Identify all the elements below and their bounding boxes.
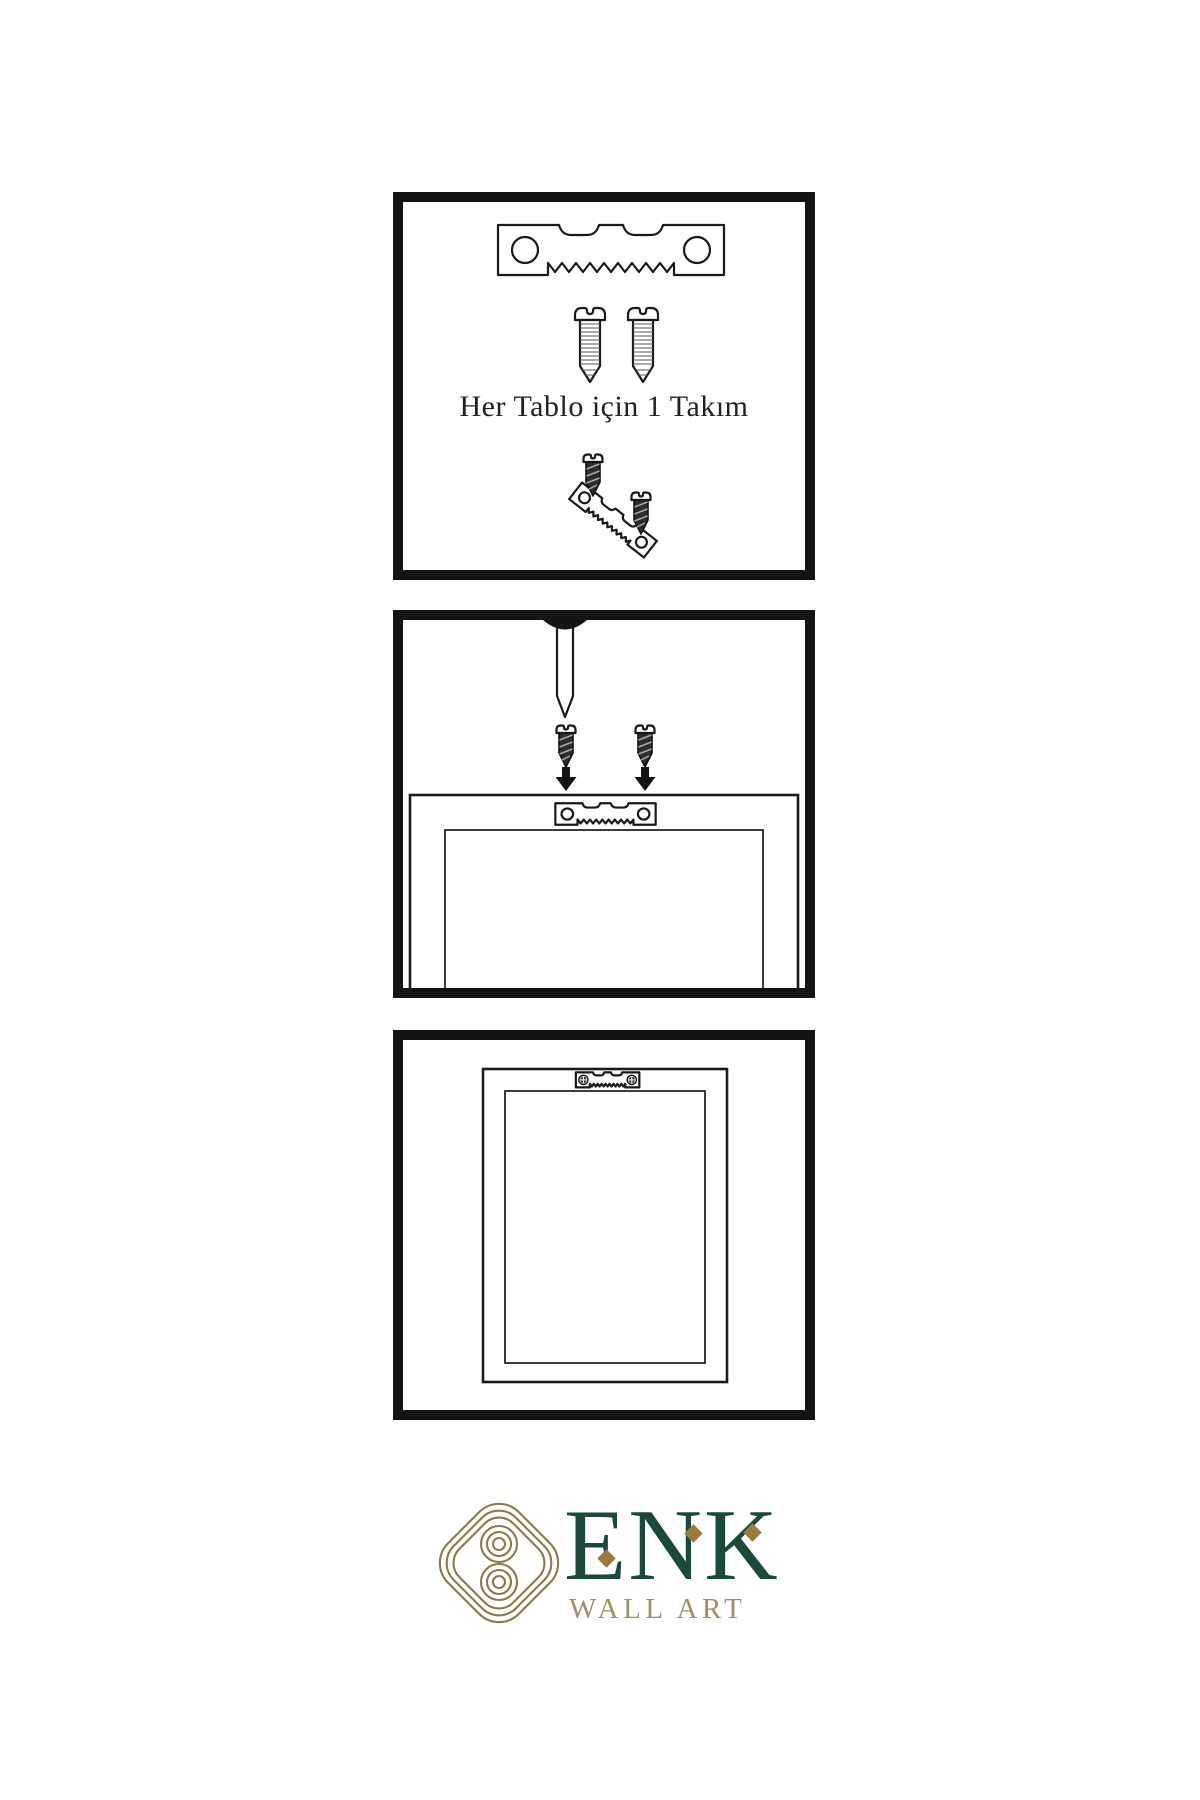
instruction-sheet: Her Tablo için 1 Takım bbox=[0, 0, 1200, 1800]
step1-panel: Her Tablo için 1 Takım bbox=[393, 192, 815, 580]
screw-icon bbox=[636, 726, 655, 768]
brand-subtitle: WALL ART bbox=[569, 1594, 746, 1624]
knot-logo-icon bbox=[437, 1500, 561, 1626]
step3-panel bbox=[393, 1030, 815, 1420]
screw-icon bbox=[557, 726, 576, 768]
step3-illustration bbox=[403, 1040, 805, 1410]
step2-illustration bbox=[403, 620, 805, 988]
step1-illustration bbox=[403, 202, 805, 570]
screw-head-icon bbox=[579, 1075, 588, 1084]
down-arrow-icon bbox=[556, 767, 577, 791]
frame-back-icon bbox=[410, 795, 798, 988]
brand-name: ENK bbox=[564, 1496, 780, 1596]
step1-caption: Her Tablo için 1 Takım bbox=[403, 390, 805, 424]
wall-nail-icon bbox=[543, 620, 587, 717]
screw-icon bbox=[575, 308, 605, 382]
screw-icon bbox=[628, 308, 658, 382]
down-arrow-icon bbox=[635, 767, 656, 791]
screw-head-icon bbox=[627, 1075, 636, 1084]
screws-into-hanger-icon bbox=[569, 455, 657, 558]
hung-frame-icon bbox=[483, 1069, 727, 1382]
step2-panel bbox=[393, 610, 815, 998]
sawtooth-hanger-icon bbox=[498, 225, 724, 275]
